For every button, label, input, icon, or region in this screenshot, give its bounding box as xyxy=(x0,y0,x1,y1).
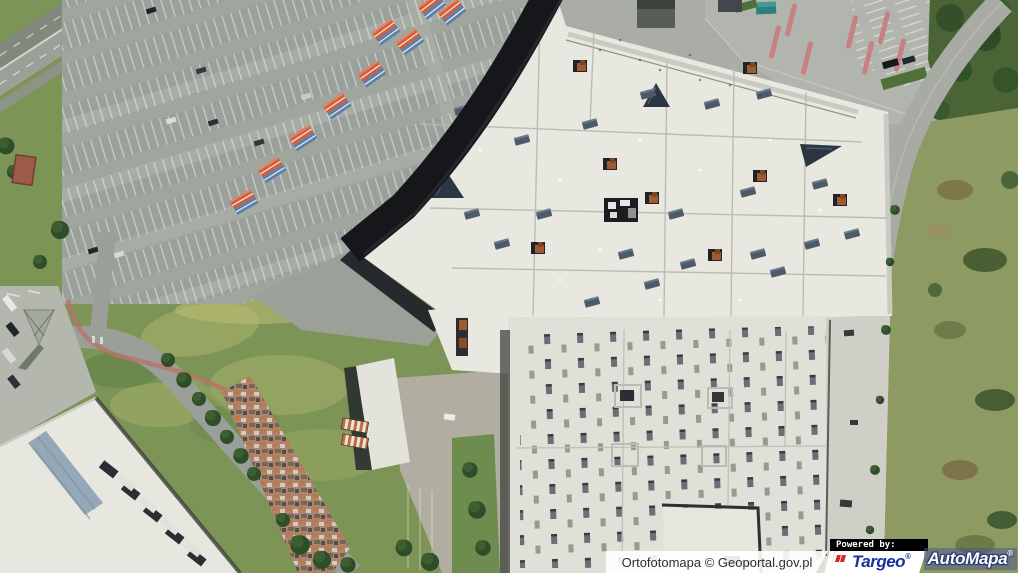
lower-building-roof xyxy=(500,283,890,573)
roof-walkway-east xyxy=(826,314,890,570)
map-viewport[interactable]: Ortofotomapa © Geoportal.gov.pl Powered … xyxy=(0,0,1018,573)
automapa-logo[interactable]: AutoMapa ® xyxy=(924,548,1017,570)
automapa-registered-mark: ® xyxy=(1007,549,1013,559)
targeo-registered-mark: ® xyxy=(905,552,911,562)
attribution-source-text: Ortofotomapa © Geoportal.gov.pl xyxy=(622,555,813,570)
powered-by-label: Powered by: xyxy=(830,539,928,551)
aerial-imagery xyxy=(0,0,1018,573)
rooftop-plant-unit xyxy=(604,198,638,222)
dumpster xyxy=(756,1,777,14)
targeo-quote-icon xyxy=(836,555,845,562)
targeo-logo[interactable]: Targeo ® xyxy=(829,551,926,573)
targeo-wordmark: Targeo xyxy=(852,551,905,572)
automapa-wordmark: AutoMapa xyxy=(928,548,1008,570)
attribution-bar: Ortofotomapa © Geoportal.gov.pl xyxy=(606,551,828,573)
